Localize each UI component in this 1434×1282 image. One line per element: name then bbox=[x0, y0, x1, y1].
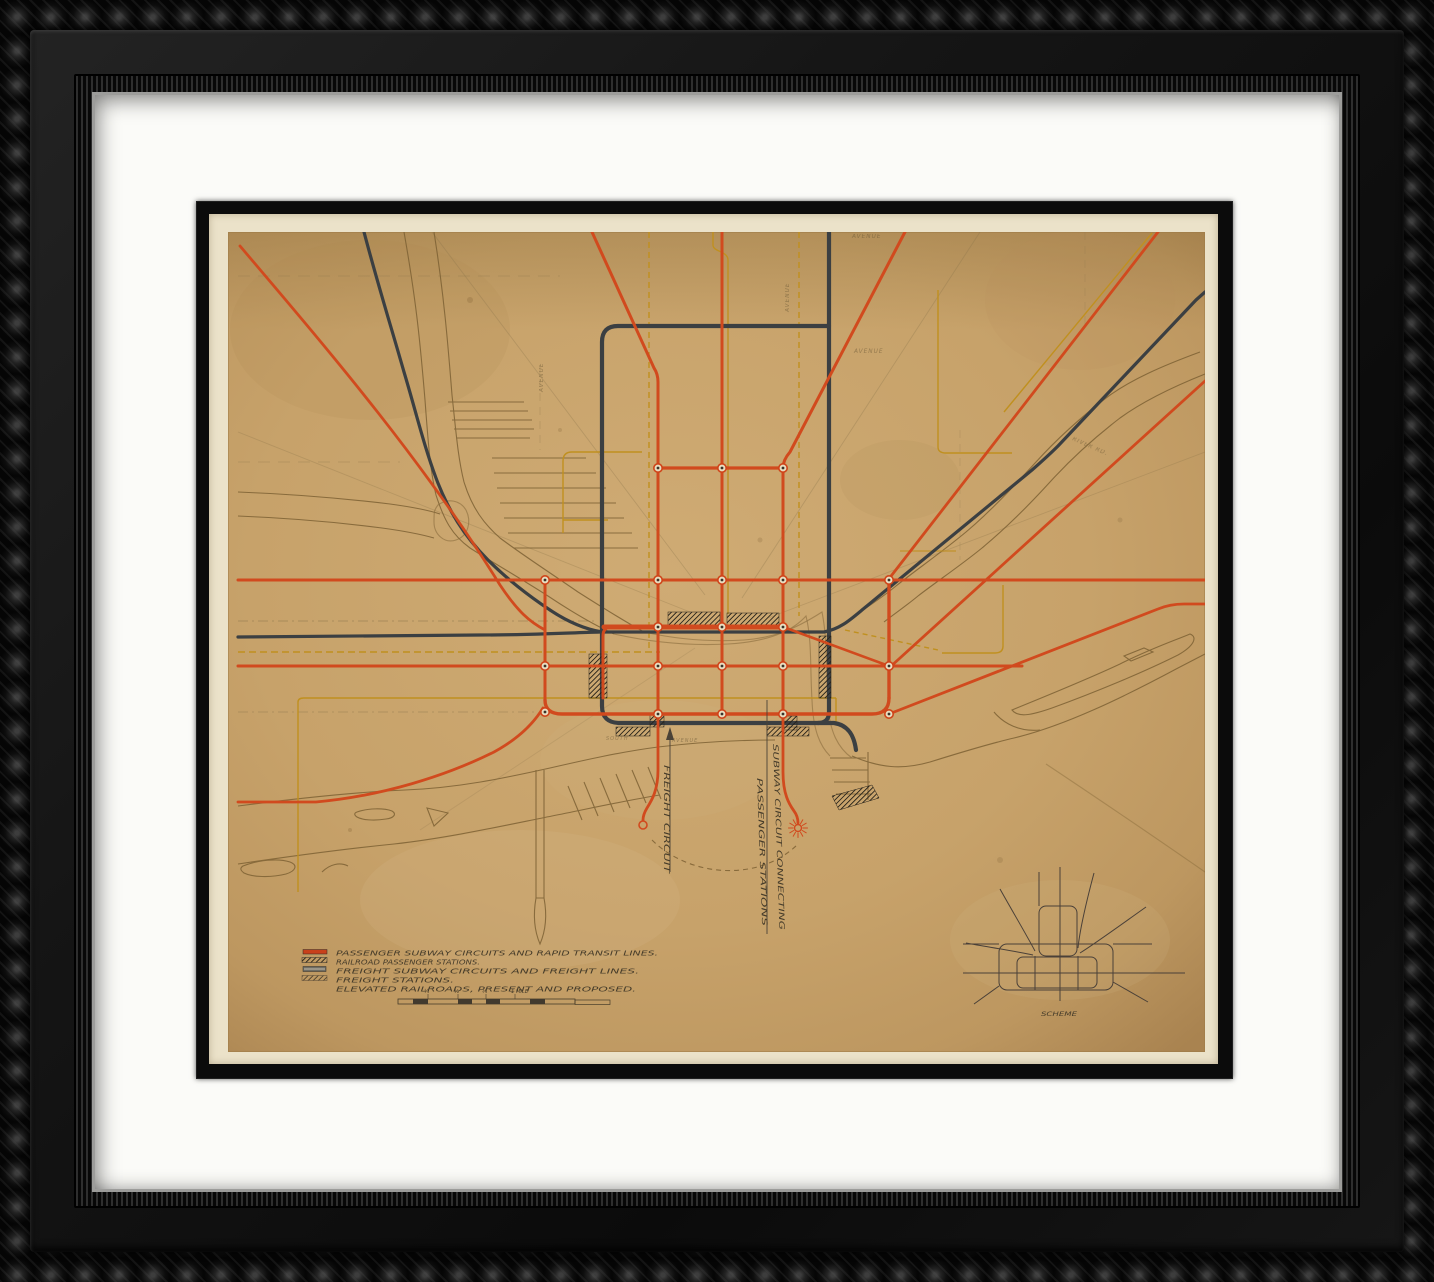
scheme-caption: SCHEME bbox=[1041, 1010, 1078, 1018]
legend: PASSENGER SUBWAY CIRCUITS AND RAPID TRAN… bbox=[302, 949, 658, 994]
scale-tick-label: 1 MILE bbox=[511, 989, 529, 995]
street-label: AVENUE bbox=[851, 234, 882, 240]
transit-plan-map: FREIGHT CIRCUIT SUBWAY CIRCUIT CONNECTIN… bbox=[228, 232, 1205, 1052]
street-label: SOUTH bbox=[606, 736, 629, 742]
scale-tick-label: ¾ bbox=[482, 989, 487, 995]
framed-transit-map-photo: FREIGHT CIRCUIT SUBWAY CIRCUIT CONNECTIN… bbox=[0, 0, 1434, 1282]
scale-tick-label: ¼ bbox=[424, 989, 429, 995]
legend-swatch-light-hatch bbox=[302, 976, 327, 981]
legend-item-label: RAILROAD PASSENGER STATIONS. bbox=[336, 958, 480, 967]
street-label: AVENUE bbox=[785, 282, 791, 313]
street-label: AVENUE bbox=[671, 738, 698, 744]
legend-swatch-orange-line bbox=[303, 950, 327, 955]
scale-tick-label: ½ bbox=[454, 988, 459, 995]
legend-item-label: FREIGHT STATIONS. bbox=[336, 976, 454, 985]
freight-circuit-label: FREIGHT CIRCUIT bbox=[662, 765, 671, 875]
legend-swatch-black-hatch bbox=[302, 958, 327, 963]
street-label: AVENUE bbox=[539, 362, 545, 393]
legend-item-label: PASSENGER SUBWAY CIRCUITS AND RAPID TRAN… bbox=[336, 949, 658, 958]
legend-item-label: FREIGHT SUBWAY CIRCUITS AND FREIGHT LINE… bbox=[336, 967, 639, 976]
street-label: AVENUE bbox=[853, 349, 884, 355]
